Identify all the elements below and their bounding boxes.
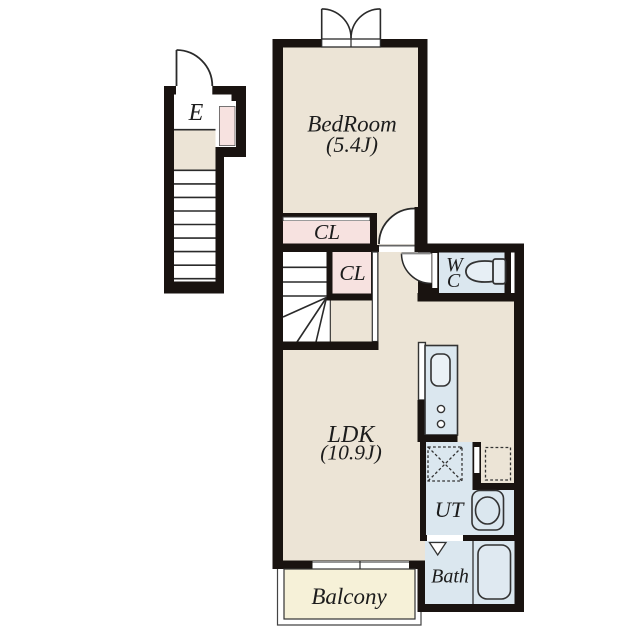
svg-text:(5.4J): (5.4J): [326, 132, 378, 157]
svg-text:CL: CL: [339, 261, 365, 285]
svg-text:C: C: [447, 270, 461, 292]
svg-text:CL: CL: [314, 220, 340, 244]
svg-text:(10.9J): (10.9J): [320, 441, 382, 465]
svg-text:Bath: Bath: [431, 566, 469, 588]
svg-text:UT: UT: [435, 497, 465, 522]
svg-text:E: E: [188, 100, 204, 126]
svg-text:Balcony: Balcony: [311, 584, 387, 609]
